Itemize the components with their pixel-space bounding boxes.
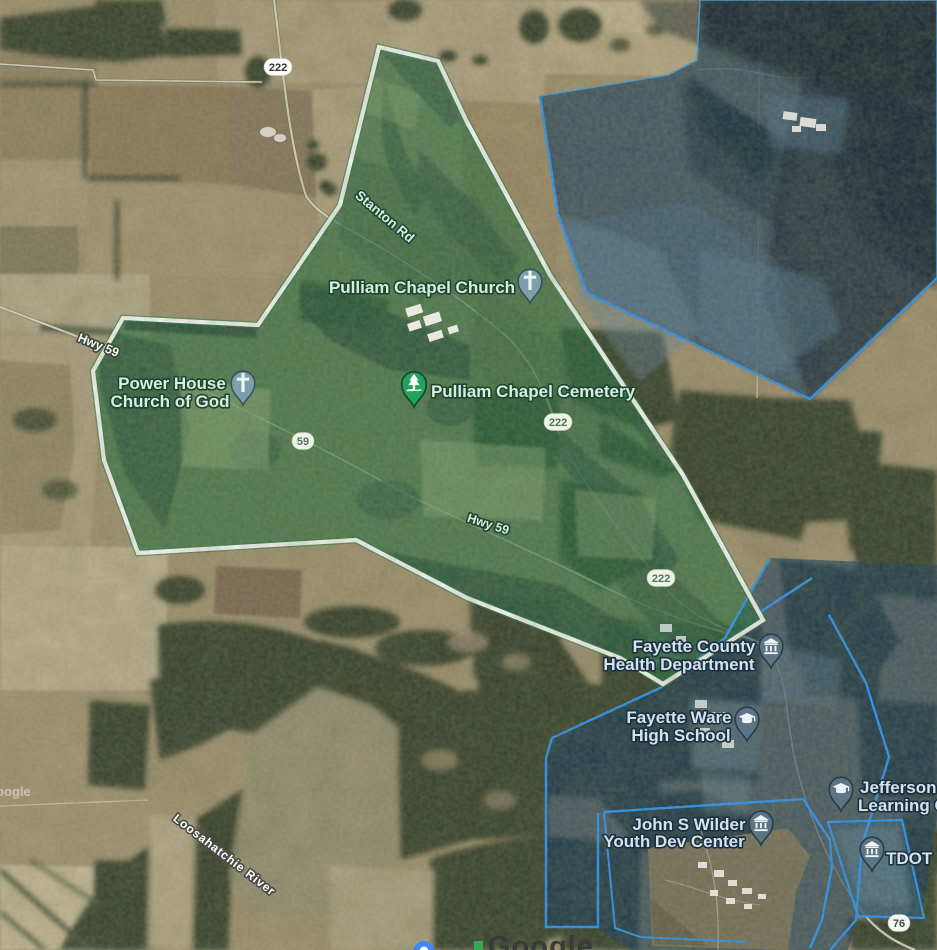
svg-text:222: 222 — [549, 417, 567, 429]
svg-text:Church of God: Church of God — [111, 392, 230, 411]
svg-text:Power House: Power House — [118, 374, 226, 393]
svg-text:59: 59 — [297, 436, 309, 448]
svg-text:Jefferson: Jefferson — [860, 778, 937, 797]
svg-text:Youth Dev Center: Youth Dev Center — [603, 832, 745, 851]
svg-text:High School: High School — [631, 726, 730, 745]
svg-text:Google: Google — [488, 931, 594, 950]
svg-text:Health Department: Health Department — [603, 655, 754, 674]
svg-text:222: 222 — [652, 573, 670, 585]
svg-text:222: 222 — [269, 62, 287, 74]
svg-text:Learning C: Learning C — [858, 796, 937, 815]
svg-text:Google: Google — [0, 784, 31, 799]
svg-text:Fayette County: Fayette County — [633, 637, 756, 656]
svg-text:TDOT: TDOT — [886, 849, 933, 868]
svg-text:Fayette Ware: Fayette Ware — [626, 708, 731, 727]
svg-text:76: 76 — [893, 918, 905, 930]
svg-text:Pulliam Chapel Church: Pulliam Chapel Church — [329, 278, 515, 297]
svg-text:Pulliam Chapel Cemetery: Pulliam Chapel Cemetery — [431, 382, 636, 401]
